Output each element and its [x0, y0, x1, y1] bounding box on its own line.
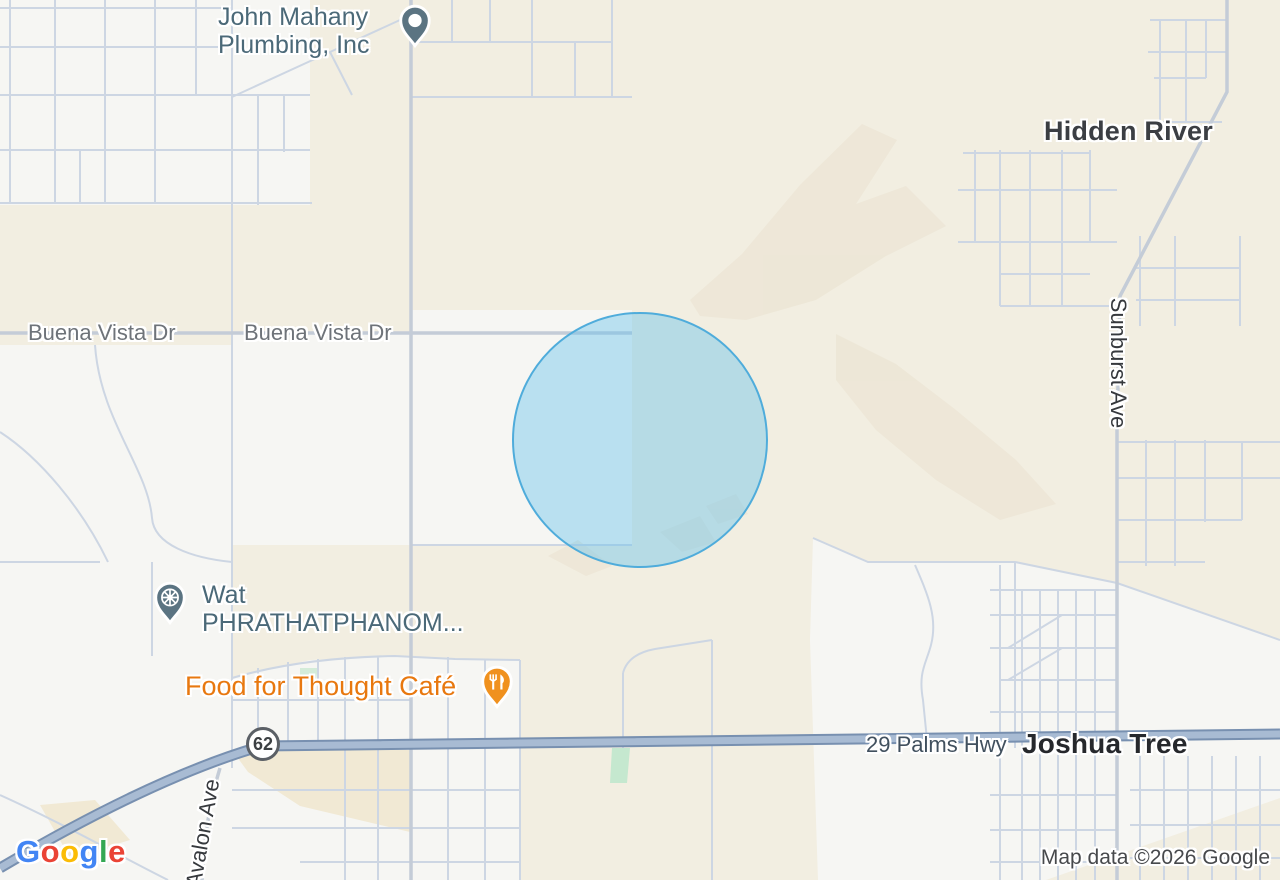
poi-label-line: PHRATHATPHANOM...: [202, 609, 464, 637]
poi-label-wat-phrathatphanom[interactable]: Wat PHRATHATPHANOM...: [202, 581, 464, 637]
wheel-hub: [167, 595, 173, 601]
poi-label-line: Wat: [202, 581, 464, 609]
poi-pin-food-for-thought-cafe[interactable]: [474, 662, 520, 719]
map-data-attribution: Map data ©2026 Google: [1041, 846, 1270, 870]
route-62-shield: 62: [246, 727, 280, 761]
poi-label-line: Plumbing, Inc: [218, 31, 369, 59]
pin-dot-icon: [408, 14, 421, 27]
poi-label-food-for-thought-cafe[interactable]: Food for Thought Café: [185, 672, 456, 700]
google-logo[interactable]: Google: [16, 834, 126, 870]
locality-label-joshua-tree: Joshua Tree: [1022, 728, 1188, 760]
google-logo-letter: o: [60, 834, 79, 870]
road-label-buena-vista-dr-west: Buena Vista Dr: [28, 320, 176, 346]
road-label-buena-vista-dr-east: Buena Vista Dr: [244, 320, 392, 346]
poi-label-line: Food for Thought Café: [185, 672, 456, 700]
google-logo-letter: o: [41, 834, 60, 870]
map-pin-icon: [483, 667, 512, 706]
google-logo-letter: G: [16, 834, 41, 870]
map-canvas[interactable]: Hidden River Joshua Tree Buena Vista Dr …: [0, 0, 1280, 880]
google-logo-letter: e: [108, 834, 126, 870]
poi-pin-john-mahany-plumbing[interactable]: [392, 1, 438, 58]
poi-label-line: John Mahany: [218, 3, 369, 31]
radius-overlay-circle: [513, 313, 767, 567]
locality-label-hidden-river: Hidden River: [1044, 116, 1213, 147]
route-62-number: 62: [253, 734, 273, 755]
poi-label-john-mahany-plumbing[interactable]: John Mahany Plumbing, Inc: [218, 3, 369, 59]
google-logo-letter: l: [99, 834, 108, 870]
poi-pin-wat-phrathatphanom[interactable]: [147, 578, 193, 635]
road-label-sunburst-ave: Sunburst Ave: [1105, 298, 1131, 428]
road-label-29-palms-hwy: 29 Palms Hwy: [866, 732, 1007, 758]
google-logo-letter: g: [80, 834, 99, 870]
